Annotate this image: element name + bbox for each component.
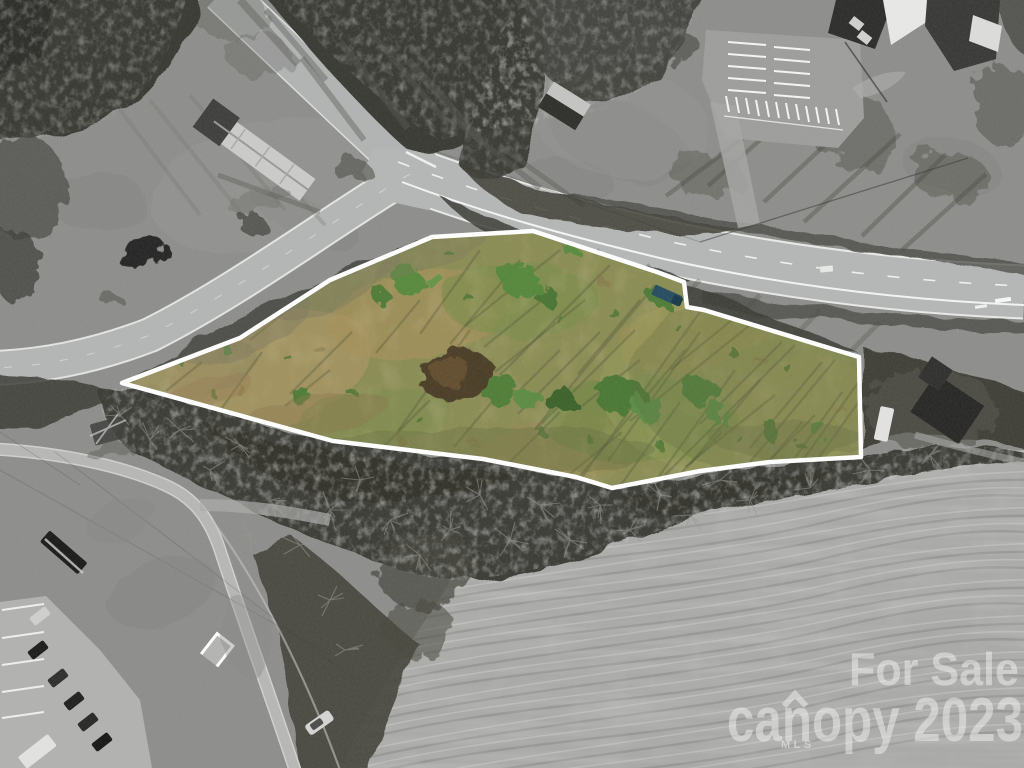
svg-text:canopy 2023: canopy 2023 [727,686,1023,755]
svg-text:MLS: MLS [781,739,815,751]
